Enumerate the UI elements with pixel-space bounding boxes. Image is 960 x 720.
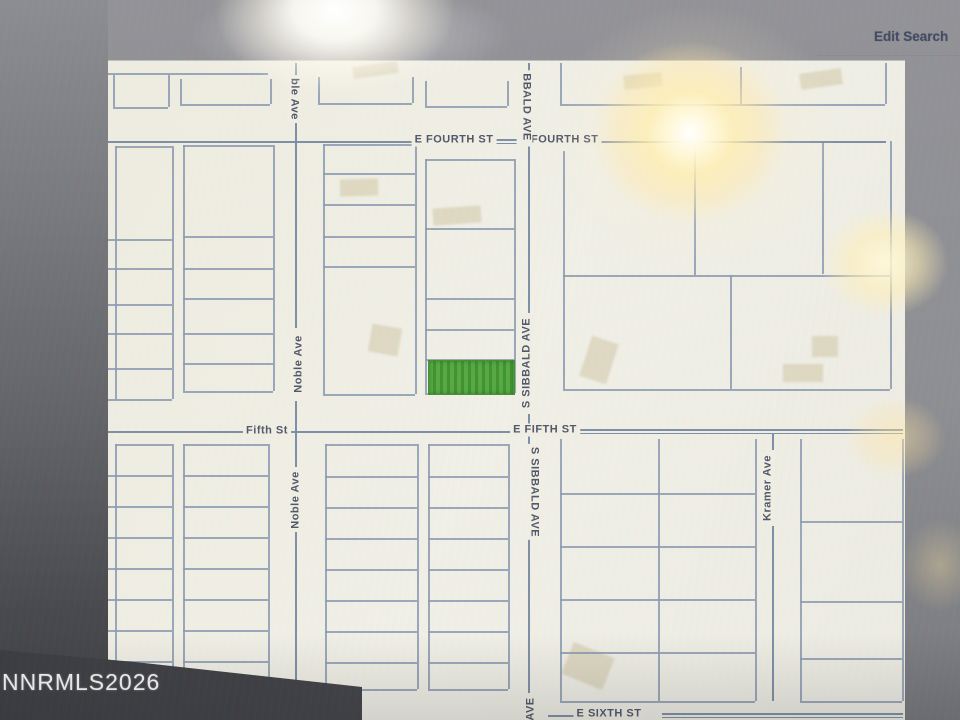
parcel-line xyxy=(428,476,508,478)
street-line xyxy=(295,401,297,467)
street-line xyxy=(772,434,774,450)
parcel-line xyxy=(323,266,415,268)
building-footprint xyxy=(579,336,619,385)
parcel-line xyxy=(183,333,273,335)
building-footprint xyxy=(340,178,379,196)
parcel-line xyxy=(115,146,172,148)
parcel-line xyxy=(323,173,415,175)
parcel-line xyxy=(183,391,273,393)
parcel-line xyxy=(425,159,427,393)
parcel-line xyxy=(108,268,172,270)
highlighted-parcel[interactable] xyxy=(428,360,515,395)
parcel-line xyxy=(800,701,902,703)
building-footprint xyxy=(623,72,662,89)
parcel-line xyxy=(425,106,507,108)
parcel-line xyxy=(108,399,172,401)
street-line xyxy=(295,532,297,689)
street-line xyxy=(291,431,516,433)
edit-search-link[interactable]: Edit Search xyxy=(874,29,948,44)
parcel-line xyxy=(563,151,565,389)
street-label-noble-ave-south: Noble Ave xyxy=(290,468,303,531)
street-line xyxy=(108,141,418,143)
parcel-line xyxy=(108,537,172,539)
parcel-line xyxy=(172,146,174,399)
parcel-line xyxy=(325,538,417,540)
parcel-line xyxy=(183,363,273,365)
parcel-line xyxy=(428,444,430,689)
street-line xyxy=(295,122,297,328)
parcel-line xyxy=(417,444,419,689)
parcel-line xyxy=(885,63,887,104)
street-label-ave-bottom: AVE xyxy=(525,694,538,720)
parcel-line xyxy=(183,661,268,663)
street-line xyxy=(592,141,886,143)
street-line xyxy=(662,713,903,715)
parcel-line xyxy=(325,444,417,446)
street-line xyxy=(295,63,297,76)
parcel-line xyxy=(800,658,902,660)
parcel-line xyxy=(800,601,902,603)
screen: E FOURTH STE FOURTH STFifth StE FIFTH ST… xyxy=(0,0,960,720)
parcel-line xyxy=(415,144,417,394)
parcel-line xyxy=(658,439,660,701)
parcel-line xyxy=(108,239,172,241)
parcel-line xyxy=(560,104,885,106)
parcel-line xyxy=(183,236,273,238)
parcel-line xyxy=(514,159,516,393)
street-label-noble-ave-mid: Noble Ave xyxy=(293,332,306,395)
parcel-line xyxy=(428,444,508,446)
parcel-line xyxy=(425,329,514,331)
parcel-line xyxy=(183,568,268,570)
parcel-line xyxy=(822,141,824,274)
parcel-line xyxy=(180,79,182,104)
parcel-line xyxy=(323,394,415,396)
parcel-line xyxy=(563,275,890,277)
building-footprint xyxy=(368,324,402,357)
parcel-line xyxy=(560,701,755,703)
parcel-line xyxy=(560,63,562,104)
parcel-line xyxy=(730,275,732,389)
parcel-line xyxy=(755,439,757,701)
parcel-line xyxy=(108,73,268,75)
parcel-line xyxy=(183,298,273,300)
street-line xyxy=(528,537,530,693)
parcel-line xyxy=(318,103,412,105)
parcel-line xyxy=(115,444,172,446)
parcel-line xyxy=(890,141,892,389)
parcel-line xyxy=(428,600,508,602)
parcel-line xyxy=(508,444,510,689)
parcel-line xyxy=(113,75,115,107)
parcel-line xyxy=(325,631,417,633)
header-divider xyxy=(815,55,960,56)
parcel-line xyxy=(108,568,172,570)
parcel-line xyxy=(108,599,172,601)
parcel-line xyxy=(412,77,414,103)
street-label-e-sixth-st: E SIXTH ST xyxy=(574,708,645,720)
parcel-line xyxy=(183,537,268,539)
parcel-line xyxy=(902,439,904,701)
parcel-line xyxy=(325,569,417,571)
parcel-line xyxy=(694,144,696,275)
parcel-line xyxy=(113,107,168,109)
street-label-s-sibbald-ave-mid: S SIBBALD AVE xyxy=(521,315,534,411)
parcel-line xyxy=(273,145,275,391)
street-label-e-fourth-st-west: E FOURTH ST xyxy=(412,134,497,147)
street-label-sibbald-ave-top: BBALD AVE xyxy=(520,70,533,143)
parcel-line xyxy=(425,81,427,106)
street-line xyxy=(662,717,903,719)
parcel-line xyxy=(428,538,508,540)
parcel-line xyxy=(428,631,508,633)
parcel-line xyxy=(425,298,514,300)
parcel-line xyxy=(115,146,117,399)
parcel-line xyxy=(183,630,268,632)
parcel-line xyxy=(425,159,514,161)
street-label-e-fifth-st: E FIFTH ST xyxy=(510,424,580,437)
parcel-line xyxy=(172,444,174,689)
parcel-line xyxy=(108,368,172,370)
parcel-line xyxy=(183,599,268,601)
parcel-line xyxy=(108,506,172,508)
building-footprint xyxy=(561,642,615,690)
street-label-kramer-ave: Kramer Ave xyxy=(762,452,775,524)
street-line xyxy=(108,431,243,433)
parcel-line xyxy=(325,444,327,689)
photo-edge-left xyxy=(0,0,108,720)
parcel-line xyxy=(425,228,514,230)
parcel-line xyxy=(325,662,417,664)
street-label-s-sibbald-ave-south: S SIBBALD AVE xyxy=(528,444,541,540)
parcel-line xyxy=(183,475,268,477)
parcel-line xyxy=(108,304,172,306)
building-footprint xyxy=(432,205,481,225)
parcel-line xyxy=(323,144,325,394)
parcel-line xyxy=(428,569,508,571)
parcel-line xyxy=(740,67,742,104)
parcel-line xyxy=(428,507,508,509)
parcel-line xyxy=(168,75,170,107)
street-line xyxy=(528,144,530,313)
parcel-line xyxy=(183,145,185,391)
parcel-line xyxy=(318,77,320,103)
parcel-line xyxy=(428,662,508,664)
parcel-line xyxy=(428,689,508,691)
parcel-line xyxy=(180,104,270,106)
street-label-noble-ave-top: ble Ave xyxy=(288,75,301,123)
parcel-line xyxy=(183,268,273,270)
parcel-line xyxy=(323,144,415,146)
parcel-line xyxy=(108,630,172,632)
parcel-line xyxy=(183,444,268,446)
parcel-line xyxy=(560,439,562,701)
parcel-line xyxy=(507,81,509,106)
watermark: NNRMLS2026 xyxy=(2,669,160,696)
parcel-line xyxy=(325,476,417,478)
parcel-line xyxy=(270,79,272,104)
building-footprint xyxy=(799,68,843,90)
street-line xyxy=(578,433,903,435)
parcel-line xyxy=(563,389,890,391)
parcel-line xyxy=(268,444,270,689)
street-line xyxy=(772,526,774,701)
parcel-line xyxy=(183,444,185,689)
parcel-line xyxy=(325,507,417,509)
street-line xyxy=(578,429,903,431)
parcel-line xyxy=(115,444,117,689)
parcel-line xyxy=(108,475,172,477)
parcel-line xyxy=(323,204,415,206)
parcel-line xyxy=(183,506,268,508)
parcel-line xyxy=(323,236,415,238)
parcel-line xyxy=(108,333,172,335)
parcel-line xyxy=(183,145,273,147)
parcel-line xyxy=(325,600,417,602)
street-label-fifth-st: Fifth St xyxy=(243,425,291,438)
building-footprint xyxy=(812,336,838,357)
building-footprint xyxy=(783,364,823,382)
parcel-line xyxy=(800,521,902,523)
map-viewport[interactable]: E FOURTH STE FOURTH STFifth StE FIFTH ST… xyxy=(108,60,905,720)
parcel-line xyxy=(800,439,802,701)
building-footprint xyxy=(352,61,398,79)
